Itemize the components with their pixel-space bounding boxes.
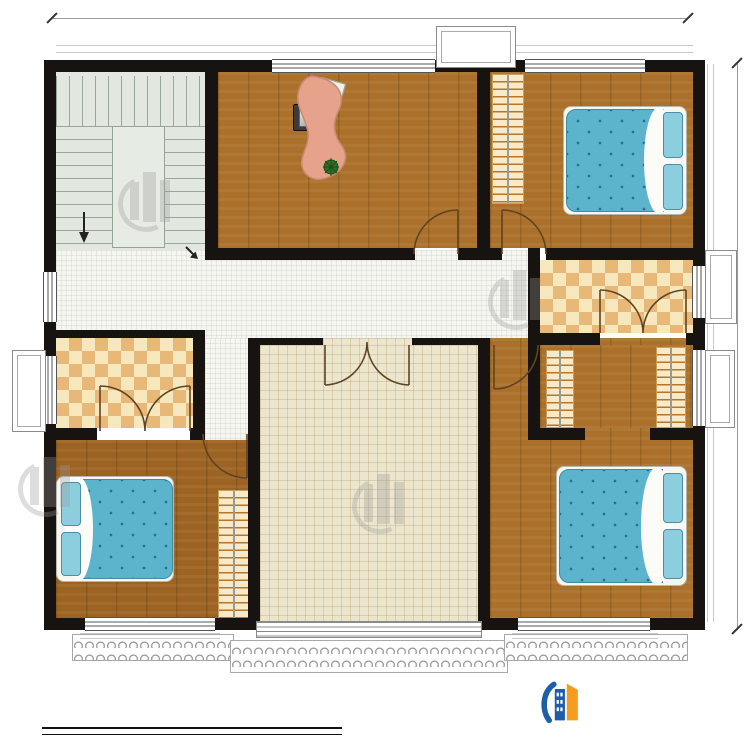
terrace-door-strip — [323, 338, 412, 345]
eaves-center — [230, 640, 508, 673]
wall-right — [693, 60, 705, 630]
stair-treads-upper — [56, 76, 205, 126]
floor-plan — [0, 0, 750, 739]
inner-bath-floor — [540, 260, 693, 333]
sill-line — [80, 633, 220, 634]
hall-floor — [56, 250, 528, 338]
wall-hall-top — [458, 248, 502, 260]
closet-bedne — [492, 74, 524, 204]
wall-innerbath-bottom — [540, 333, 600, 345]
pillow — [663, 112, 683, 158]
terrace-floor — [260, 345, 478, 622]
bed-se — [556, 466, 687, 586]
window-innerbath-right — [692, 266, 706, 318]
wall-terrace-top — [248, 338, 323, 345]
window-bedsw-bottom — [85, 617, 215, 631]
window-box-right-1 — [705, 250, 737, 324]
sill-line — [56, 45, 693, 46]
sill-line — [80, 638, 220, 639]
wall-hall-top — [205, 248, 415, 260]
bed-ne — [563, 106, 687, 215]
desk-monitor — [293, 104, 328, 131]
cloakroom-rack-left — [546, 350, 574, 428]
pillow — [61, 532, 81, 576]
pillow — [61, 482, 81, 526]
wall-pubbath-bottom — [190, 428, 205, 440]
pillow — [663, 164, 683, 210]
stair-treads-left — [56, 126, 112, 246]
window-cloak-right — [692, 350, 706, 426]
corridor-floor — [205, 338, 248, 440]
wall-office-bedne — [477, 72, 490, 255]
stair-landing — [112, 126, 165, 248]
window-office-top — [272, 59, 435, 73]
wall-innerbath-bottom — [686, 333, 693, 345]
wall-hall-top — [546, 248, 705, 260]
wall-left — [44, 60, 56, 630]
brand-logo-icon — [540, 676, 588, 726]
wall-cloak-bottom — [540, 428, 585, 440]
wall-pubbath-top — [44, 330, 205, 338]
monitor-screen — [299, 108, 317, 127]
pillow — [663, 529, 683, 579]
sill-line — [713, 64, 714, 622]
pillow — [663, 473, 683, 523]
bed-sw — [56, 476, 174, 582]
window-bedse-bottom — [518, 617, 650, 631]
cloakroom-rack-right — [656, 347, 686, 428]
sill-line — [512, 633, 658, 634]
bay-window-top — [436, 26, 516, 68]
wall-pubbath-bottom — [44, 428, 97, 440]
window-box-right-2 — [705, 350, 735, 428]
wall-terrace-right — [478, 338, 490, 630]
window-box-left — [12, 350, 46, 432]
stair-treads-right — [163, 126, 205, 246]
window-hall-left — [43, 272, 57, 322]
wall-stair-office — [205, 72, 218, 255]
wall-terrace-left — [248, 338, 260, 630]
wall-cloak-bottom — [650, 428, 693, 440]
sill-line — [707, 64, 708, 622]
terrace-railing — [256, 621, 482, 638]
sill-line — [512, 638, 658, 639]
public-bath-floor — [56, 338, 193, 428]
right-dimension-line — [737, 64, 738, 630]
closet-bedsw — [218, 490, 250, 620]
wall-innerbath-left — [528, 248, 540, 440]
top-dimension-line — [52, 18, 688, 19]
sill-line — [56, 52, 693, 53]
title-underline — [42, 727, 342, 735]
office-floor — [218, 72, 477, 248]
window-bedne-top — [525, 59, 645, 73]
wall-pubbath-right — [193, 330, 205, 440]
